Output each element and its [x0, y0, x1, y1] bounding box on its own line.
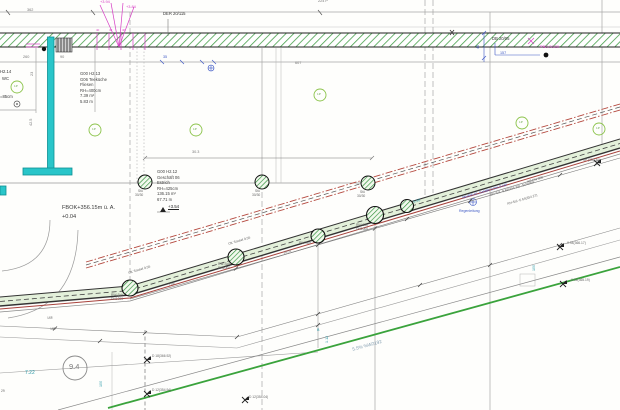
floor-elevation-note: FBOK+356.15m ü. A. — [62, 206, 115, 212]
beam-tag: DB 20/05 — [492, 37, 509, 41]
wall-pier-hatch — [56, 38, 72, 52]
room-id: G00 H2.13 — [80, 72, 100, 76]
manhole-symbol — [401, 200, 414, 213]
drawing-text: 1.12 — [326, 336, 330, 343]
elevation-flag-icon — [160, 207, 166, 212]
drawing-text: 42.5 — [30, 119, 34, 126]
drawing-text: 35 — [163, 56, 167, 60]
manhole-symbol — [122, 280, 138, 296]
dim-224p: 224 P — [318, 0, 328, 4]
manhole-symbol — [311, 229, 325, 243]
drawing-text: 40 — [96, 29, 99, 32]
terrain-lines — [58, 257, 620, 410]
survey-label: D 18(366.92) — [152, 355, 171, 358]
parcel-number: 9.4 — [69, 363, 79, 371]
drawing-text: DN1000 — [218, 267, 230, 270]
drawing-text: 7.22 — [25, 371, 35, 376]
dim-362: 362 — [27, 9, 33, 13]
spot-elevation: +3.54 — [168, 205, 179, 210]
drawing-text: 30.3 — [192, 151, 199, 155]
drawing-text: 100 — [100, 381, 104, 387]
dimension-chains — [0, 158, 620, 373]
survey-label: D 12(354.94) — [152, 389, 171, 392]
room-id: G00 H2.12 — [157, 170, 177, 174]
survey-label: -0.94(366.17) — [566, 242, 586, 245]
drawing-text: 1P — [596, 127, 600, 130]
drawing-text: H2.14 — [0, 70, 11, 74]
cad-plan-viewport: 362224 PDER 20/115+3.94+3.84404040DB 20/… — [0, 0, 620, 410]
drawing-text: 1P — [317, 93, 321, 96]
drawing-text: 23 — [31, 72, 35, 76]
point-marker-dot — [42, 47, 46, 51]
drawing-text: 40 — [122, 29, 125, 32]
terrain-line-green — [108, 267, 620, 408]
drawing-text: B — [317, 329, 319, 333]
column-symbol — [361, 176, 375, 190]
drawing-text: DN1000 — [356, 228, 368, 231]
drawing-text: 5.83 m — [80, 100, 93, 104]
drawing-text: 157 — [500, 52, 506, 56]
beam-tag: DER 20/115 — [163, 12, 186, 16]
survey-label: -0.92(365.19) — [570, 279, 590, 282]
drawing-text: 30/30 — [135, 194, 143, 197]
drawing-text: 1P — [193, 128, 197, 131]
survey-cross-icon — [242, 396, 249, 403]
drawing-text: 260 — [23, 56, 29, 60]
blue-dimension-marks — [160, 31, 540, 206]
manhole-symbol — [228, 249, 244, 265]
drawing-text: Fliesen — [80, 83, 94, 87]
drawing-text: 136.15 m² — [157, 192, 176, 196]
drawing-text: DN1000 — [111, 298, 123, 301]
drawing-text: WC — [2, 77, 9, 81]
insulation-hatch-band — [0, 30, 620, 57]
drawing-text: 168 — [47, 317, 53, 321]
column-tag: PBO 20/20 — [540, 45, 559, 49]
drawing-text: 30/30 — [252, 194, 260, 197]
column-symbol — [255, 175, 269, 189]
interior-dimension — [143, 156, 374, 160]
drawing-text: 1P — [14, 85, 18, 88]
drawing-text: Regenleitung — [459, 210, 480, 214]
manhole-symbol — [367, 207, 384, 224]
drawing-text: +3.94 — [100, 0, 110, 4]
door-swing-arc — [2, 220, 50, 271]
point-marker-dot — [544, 53, 549, 58]
survey-label: 4P (355.30) — [583, 159, 600, 162]
drawing-text: 29 — [1, 390, 5, 393]
drawing-text: 7.39 m² — [80, 94, 94, 98]
drawing-text: 607 — [295, 62, 301, 66]
manhole-label: RW-Sch — [299, 242, 311, 245]
drawing-text: +0.04 — [62, 215, 76, 221]
survey-label: D 12(354.04) — [249, 396, 268, 399]
drawing-text: 30/30 — [357, 195, 365, 198]
drawing-text: +3.84 — [126, 5, 136, 9]
drawing-text: 188 — [50, 328, 56, 332]
drawing-text: 1P — [92, 128, 96, 131]
drawing-text: 45 — [477, 45, 481, 49]
drawing-text: =85cm — [0, 95, 13, 99]
drawing-text: 40 — [109, 29, 112, 32]
drawing-text: Estrich — [157, 181, 170, 185]
drawing-text: 100 — [533, 265, 537, 271]
drawing-text: 1P — [519, 121, 523, 124]
drawing-text: 67.71 m — [157, 198, 172, 202]
drawing-text: 90 — [60, 56, 64, 60]
column-symbol — [138, 175, 152, 189]
